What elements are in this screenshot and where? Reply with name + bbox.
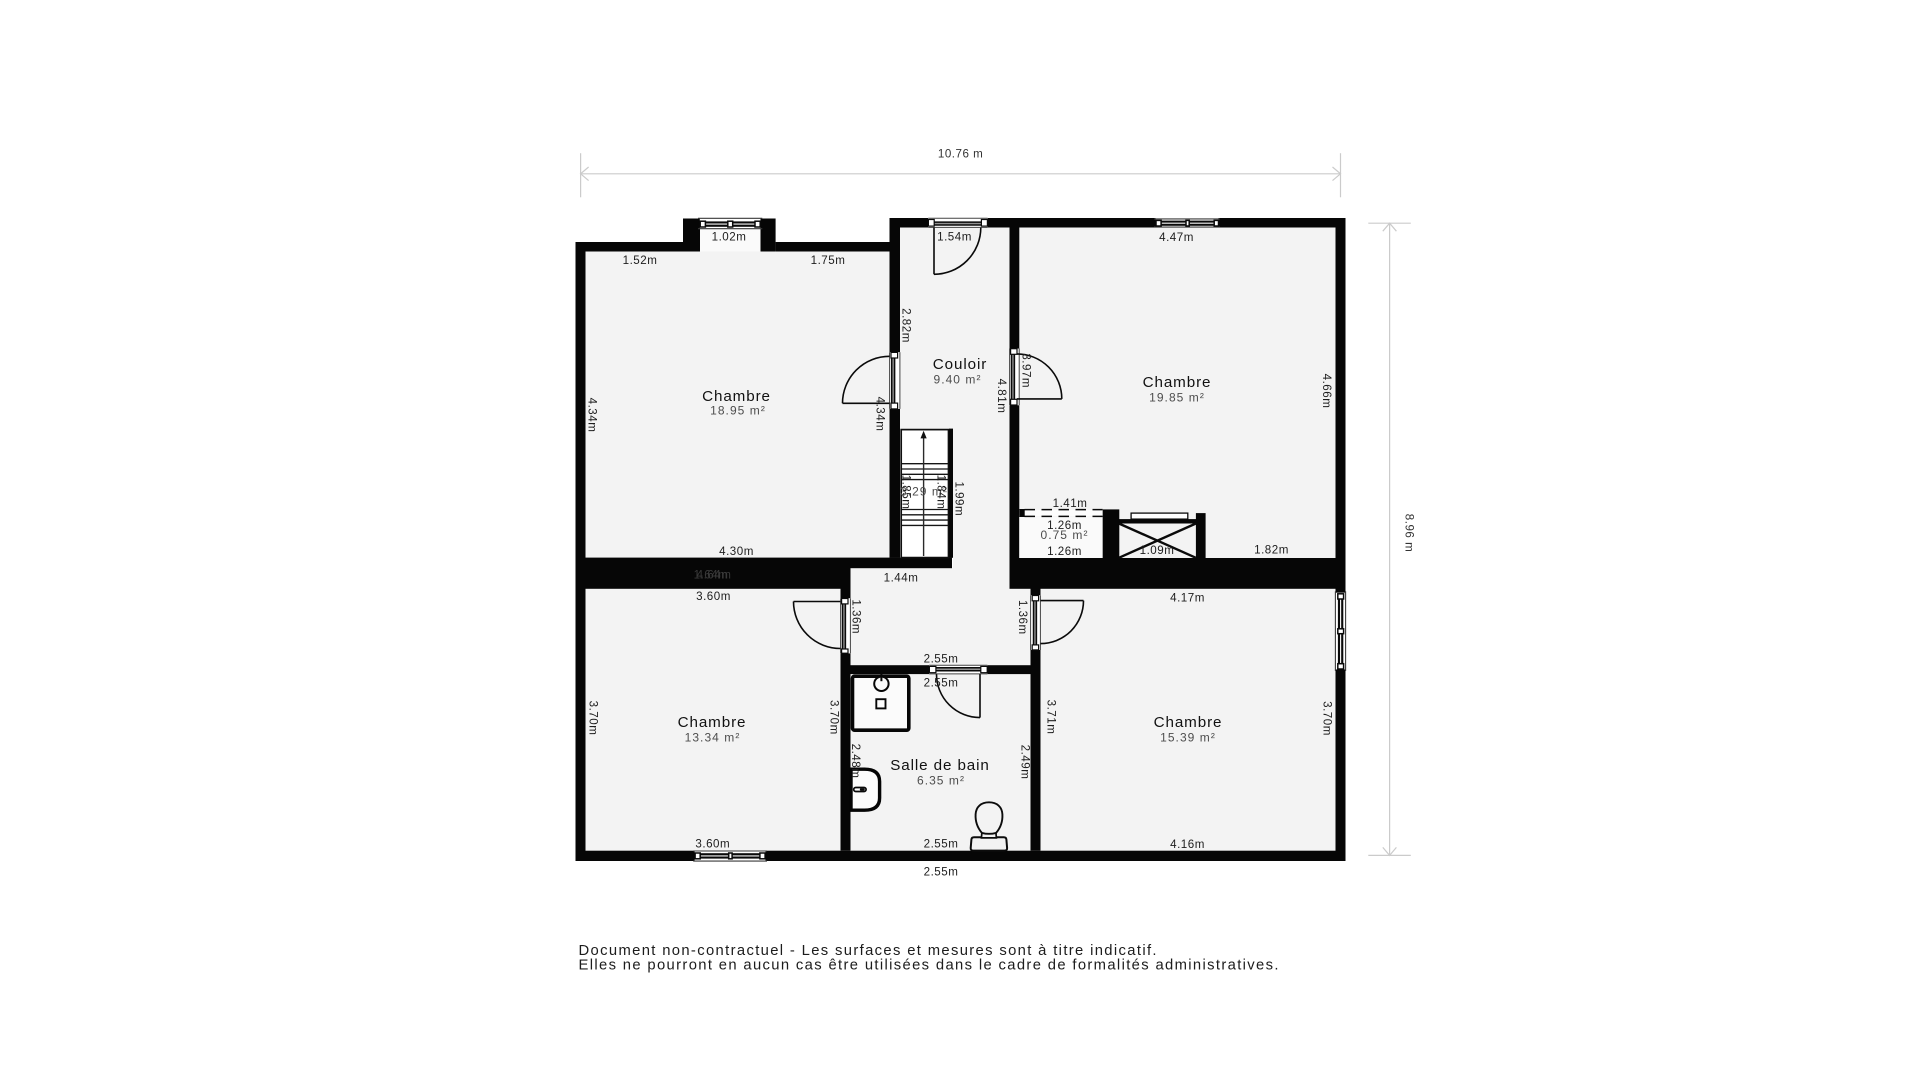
svg-text:Chambre: Chambre <box>1154 714 1223 731</box>
svg-text:2.82m: 2.82m <box>900 308 913 343</box>
svg-text:1.41m: 1.41m <box>1053 497 1088 510</box>
svg-text:1.82m: 1.82m <box>1254 543 1289 556</box>
svg-text:3.70m: 3.70m <box>1320 701 1333 736</box>
svg-text:1.85m: 1.85m <box>899 475 912 510</box>
svg-text:4.81m: 4.81m <box>995 379 1008 414</box>
svg-text:4.64m: 4.64m <box>697 569 732 582</box>
svg-text:6.35 m²: 6.35 m² <box>917 773 965 787</box>
svg-text:3.60m: 3.60m <box>696 590 731 603</box>
svg-text:3.70m: 3.70m <box>828 700 841 735</box>
svg-text:Chambre: Chambre <box>678 714 747 731</box>
svg-text:2.55m: 2.55m <box>924 865 959 878</box>
svg-text:3.70m: 3.70m <box>586 701 599 736</box>
svg-text:4.16m: 4.16m <box>1170 838 1205 851</box>
svg-text:2.55m: 2.55m <box>924 652 959 665</box>
svg-text:1.54m: 1.54m <box>937 231 972 244</box>
svg-text:3.71m: 3.71m <box>1044 700 1057 735</box>
svg-text:4.66m: 4.66m <box>1320 374 1333 409</box>
svg-text:1.75m: 1.75m <box>811 254 846 267</box>
svg-text:18.95 m²: 18.95 m² <box>710 404 766 418</box>
svg-text:1.36m: 1.36m <box>1016 600 1029 635</box>
svg-text:4.34m: 4.34m <box>585 398 598 433</box>
svg-text:1.09m: 1.09m <box>1140 544 1175 557</box>
svg-text:19.85 m²: 19.85 m² <box>1149 390 1205 404</box>
svg-text:15.39 m²: 15.39 m² <box>1160 730 1216 744</box>
svg-text:10.76 m: 10.76 m <box>938 147 983 160</box>
svg-text:1.26m: 1.26m <box>1047 545 1082 558</box>
svg-text:Salle de bain: Salle de bain <box>890 757 990 774</box>
svg-text:1.02m: 1.02m <box>712 231 747 244</box>
svg-text:2.48m: 2.48m <box>849 744 862 779</box>
svg-text:3.97m: 3.97m <box>1019 353 1032 388</box>
svg-text:13.34 m²: 13.34 m² <box>685 730 741 744</box>
svg-text:1.36m: 1.36m <box>850 599 863 634</box>
svg-text:1.44m: 1.44m <box>884 571 919 584</box>
svg-text:1.99m: 1.99m <box>953 481 966 516</box>
svg-text:4.34m: 4.34m <box>873 397 886 432</box>
svg-text:Elles ne pourront en aucun cas: Elles ne pourront en aucun cas être util… <box>579 958 1280 974</box>
svg-text:8.96 m: 8.96 m <box>1402 514 1415 552</box>
svg-text:2.49m: 2.49m <box>1018 745 1031 780</box>
svg-text:Chambre: Chambre <box>702 388 771 405</box>
svg-text:2.55m: 2.55m <box>924 676 959 689</box>
svg-text:4.30m: 4.30m <box>719 545 754 558</box>
svg-text:1.84m: 1.84m <box>934 475 947 510</box>
svg-text:Chambre: Chambre <box>1143 374 1212 391</box>
svg-text:Document non-contractuel - Les: Document non-contractuel - Les surfaces … <box>579 943 1158 959</box>
svg-text:2.55m: 2.55m <box>924 837 959 850</box>
svg-text:1.52m: 1.52m <box>623 254 658 267</box>
svg-text:9.40 m²: 9.40 m² <box>933 372 981 386</box>
svg-text:4.47m: 4.47m <box>1159 231 1194 244</box>
svg-text:0.75 m²: 0.75 m² <box>1040 528 1088 542</box>
svg-text:Couloir: Couloir <box>933 356 987 373</box>
svg-text:4.17m: 4.17m <box>1170 591 1205 604</box>
svg-text:3.60m: 3.60m <box>695 837 730 850</box>
